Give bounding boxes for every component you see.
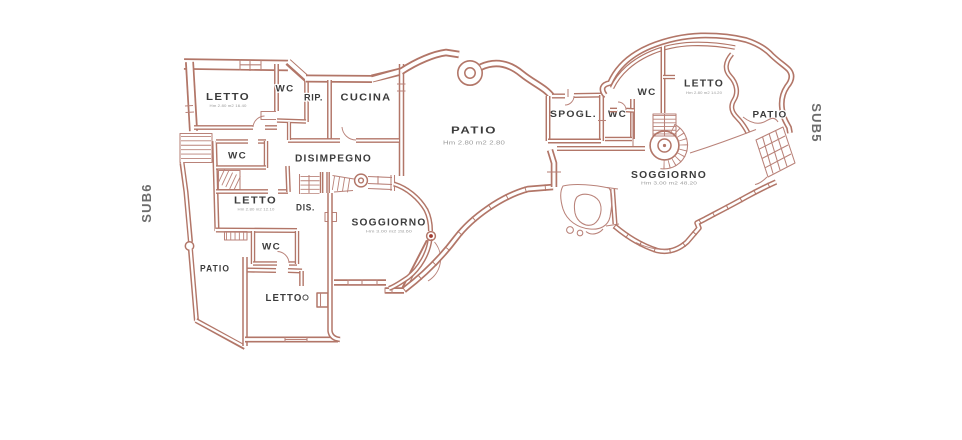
- svg-text:Hm 2.80 m2 14.20: Hm 2.80 m2 14.20: [686, 90, 723, 95]
- svg-text:SUB6: SUB6: [139, 183, 154, 222]
- svg-text:PATIO: PATIO: [200, 264, 230, 275]
- svg-text:PATIO: PATIO: [451, 126, 497, 137]
- svg-text:WC: WC: [638, 87, 657, 98]
- svg-text:WC: WC: [276, 84, 295, 94]
- svg-text:SPOGL.: SPOGL.: [550, 109, 597, 120]
- svg-text:DIS.: DIS.: [296, 203, 315, 213]
- svg-text:Hm 3.00 m2 28.60: Hm 3.00 m2 28.60: [366, 229, 413, 234]
- svg-text:SOGGIORNO: SOGGIORNO: [352, 218, 427, 229]
- svg-text:SUB5: SUB5: [809, 103, 824, 142]
- svg-text:CUCINA: CUCINA: [341, 93, 392, 104]
- svg-text:LETTO: LETTO: [206, 92, 250, 103]
- svg-text:DISIMPEGNO: DISIMPEGNO: [295, 154, 372, 165]
- svg-text:RIP.: RIP.: [304, 93, 323, 103]
- svg-text:WC: WC: [262, 242, 281, 252]
- svg-text:LETTO: LETTO: [234, 196, 277, 207]
- svg-text:Hm 3.00 m2 48.20: Hm 3.00 m2 48.20: [641, 181, 697, 186]
- svg-text:Hm 2.80 m2 12.10: Hm 2.80 m2 12.10: [238, 207, 276, 212]
- svg-text:LETTO: LETTO: [266, 293, 303, 304]
- svg-text:Hm 2.80 m2 2.80: Hm 2.80 m2 2.80: [443, 141, 505, 147]
- svg-text:LETTO: LETTO: [684, 79, 724, 90]
- svg-text:WC: WC: [228, 151, 247, 161]
- svg-text:Hm 2.80 m2 16.40: Hm 2.80 m2 16.40: [210, 103, 248, 108]
- svg-text:SOGGIORNO: SOGGIORNO: [631, 170, 707, 181]
